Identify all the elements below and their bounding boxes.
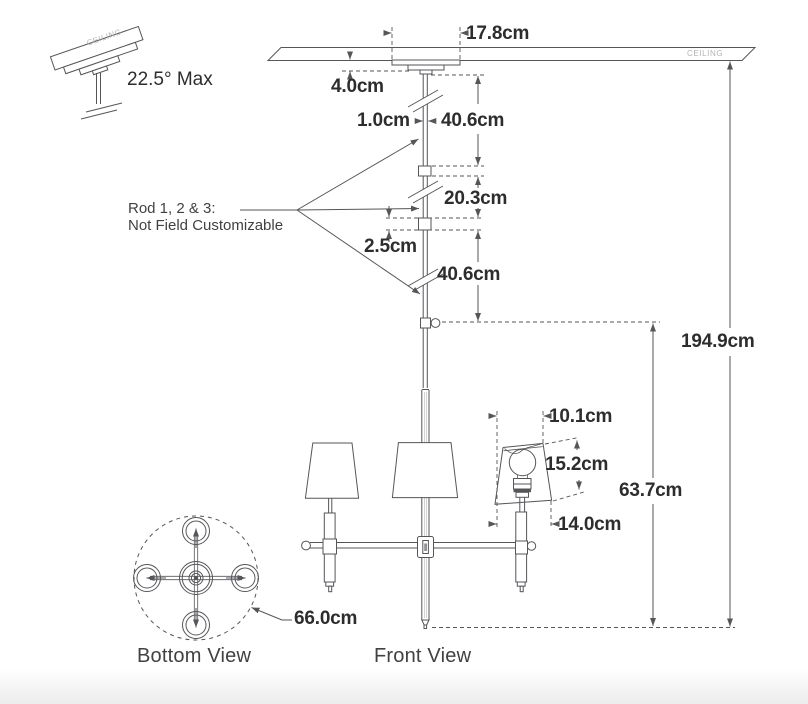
center-hub [180,562,213,595]
rod-coupler [419,218,432,230]
dim-canopy-height: 4.0cm [331,77,384,97]
tilt-angle-label: 22.5° Max [127,70,213,90]
dim-shade-top: 10.1cm [549,407,612,427]
dim-rod-segment-2: 20.3cm [444,189,507,209]
chandelier-front-view [302,390,536,629]
dim-fixture-height: 63.7cm [619,481,682,501]
bottom-view-label: Bottom View [137,646,251,667]
dim-shade-bottom: 14.0cm [558,515,621,535]
hanging-loop [431,319,440,328]
rod-note-line2: Not Field Customizable [128,218,283,235]
rod-note-line1: Rod 1, 2 & 3: [128,201,283,218]
break-mark [81,110,117,119]
diameter-leader [252,608,283,621]
dim-shade-height: 15.2cm [545,455,608,475]
arm-end-finial [302,541,311,550]
canopy-plate [392,60,460,65]
dim-overall-height: 194.9cm [681,332,755,352]
arm-end-finial [527,542,535,550]
left-shade [305,443,358,498]
bottom-view-diagram [134,516,293,640]
dim-canopy-width: 17.8cm [466,24,529,44]
dim-fixture-diameter: 66.0cm [294,609,357,629]
light-bulb [509,449,535,475]
rod-coupler [419,166,432,176]
exploded-shade-detail [495,443,552,504]
bulb-socket [514,479,532,485]
dim-rod-segment-1: 40.6cm [441,111,504,131]
center-shade [392,443,457,498]
dim-coupler: 2.5cm [364,237,417,257]
rod-note: Rod 1, 2 & 3: Not Field Customizable [128,201,283,234]
ceiling-label: CEILING [687,50,723,58]
dim-rod-diameter: 1.0cm [357,111,410,131]
chandelier-dimension-diagram: 22.5° Max CEILING CEILING 17.8cm 4.0cm 1… [0,0,808,704]
front-view-label: Front View [374,646,471,667]
page-bottom-fade [0,668,808,704]
dim-rod-segment-3: 40.6cm [437,265,500,285]
ceiling-band [268,48,755,61]
diagram-linework [0,0,808,704]
break-mark [86,103,122,112]
